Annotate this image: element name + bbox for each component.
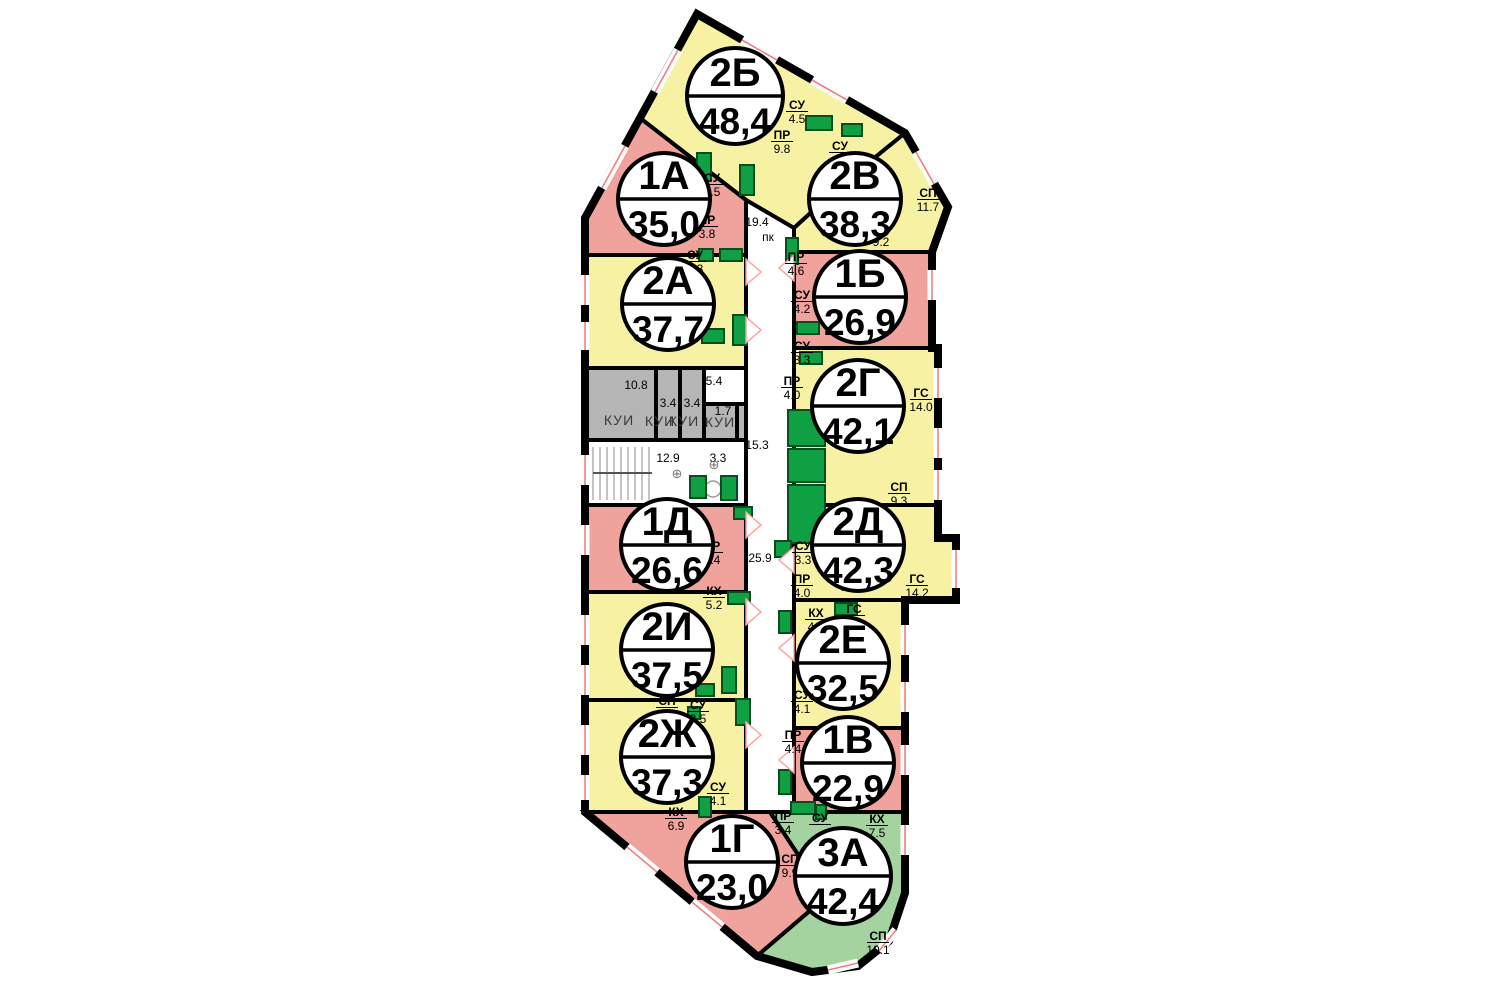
apartment-type: 2Д [833,500,884,544]
apartment-type: 2Ж [638,712,697,756]
fixture-block [690,476,706,498]
lobby-fixture [705,481,721,497]
room-label: СУ4.2 [791,288,813,316]
apartment-area: 32,5 [807,668,879,709]
apartment-badge-2В[interactable]: 2В38,3 [809,153,901,245]
svg-text:ПР: ПР [785,728,802,742]
fixture-block [733,315,747,345]
svg-text:9.8: 9.8 [774,142,791,156]
svg-text:СП: СП [869,929,886,943]
fixture-block [806,116,832,130]
apartment-badge-2Г[interactable]: 2Г42,1 [812,360,904,452]
svg-text:КХ: КХ [869,812,884,826]
apartment-area: 35,0 [628,204,700,245]
room-label: СП9.3 [888,480,910,508]
apartment-area: 37,3 [631,762,703,803]
area-value-label: 3.4 [684,396,701,410]
svg-text:14.2: 14.2 [905,586,929,600]
area-value-label: 12.9 [656,451,680,465]
svg-text:ГС: ГС [913,386,929,400]
room-label: ПР9.8 [771,128,793,156]
svg-text:4.2: 4.2 [794,302,811,316]
svg-text:СУ: СУ [794,339,811,353]
drain-symbol-icon: ⊕ [709,457,720,472]
corridor [746,200,794,812]
kui-room-label: КУИ [705,414,735,430]
room-label: СУ [829,139,851,153]
svg-text:СУ: СУ [795,539,812,553]
apartment-badge-1В[interactable]: 1В22,9 [802,717,894,809]
apartment-area: 22,9 [812,768,884,809]
area-value-label: пк [762,230,774,244]
fixture-block [779,611,791,633]
fixture-block [736,699,750,725]
apartment-badge-1Б[interactable]: 1Б26,9 [814,251,906,343]
svg-text:5.2: 5.2 [706,598,723,612]
apartment-badge-2Д[interactable]: 2Д42,3 [812,499,904,591]
apartment-type: 1В [822,718,873,762]
fixture-block [740,165,754,195]
floor-plan: СУ4.5ПР9.8СУСП11.7СУ3.5ПР3.8СУ3.3ПР4.6СУ… [0,0,1500,1000]
apartment-type: 2В [829,154,880,198]
apartment-type: 3А [817,831,868,875]
svg-text:ГС: ГС [846,602,862,616]
svg-text:11.7: 11.7 [917,200,940,214]
apartment-type: 1Б [835,252,886,296]
fixture-block [720,249,742,261]
apartment-type: 2Е [819,618,868,662]
floor-plan-svg: СУ4.5ПР9.8СУСП11.7СУ3.5ПР3.8СУ3.3ПР4.6СУ… [0,0,1500,1000]
apartment-type: 1А [638,154,689,198]
apartment-area: 42,4 [807,881,879,922]
svg-text:ПР: ПР [774,128,791,142]
svg-text:3.3: 3.3 [794,353,811,367]
apartment-badge-1Д[interactable]: 1Д26,6 [621,499,713,591]
area-value-label: 15.3 [745,438,769,452]
svg-text:14.0: 14.0 [909,400,933,414]
apartment-area: 23,0 [696,867,768,908]
area-value-label: 19.4 [745,215,769,229]
apartment-badge-2А[interactable]: 2А37,7 [622,258,714,350]
apartment-area: 48,4 [699,101,771,142]
fixture-block [779,770,791,794]
apartment-type: 2И [642,605,693,649]
room-label: СУ4.5 [786,98,808,126]
svg-text:ПР: ПР [794,572,811,586]
room-label: ПР4.6 [785,250,807,278]
room-label: ПР4.4 [782,728,804,756]
fixture-block [788,449,825,482]
svg-text:3.3: 3.3 [795,553,812,567]
area-value-label: 3.4 [660,396,677,410]
svg-text:СП: СП [890,480,907,494]
apartment-badge-1Г[interactable]: 1Г23,0 [686,816,778,908]
kui-room-label: КУИ [604,412,634,428]
svg-text:КХ: КХ [706,584,721,598]
svg-text:4.0: 4.0 [794,586,811,600]
fixture-block [721,476,737,500]
apartment-area: 37,7 [632,309,704,350]
apartment-type: 2Г [836,361,881,405]
svg-text:ПР: ПР [775,809,792,823]
apartment-area: 26,9 [824,302,896,343]
room-label: СУ4.1 [707,780,729,808]
svg-text:9.3: 9.3 [891,494,908,508]
apartment-area: 42,3 [822,550,894,591]
room-label: ПР4.0 [791,572,813,600]
room-label: ПР4.0 [781,374,803,402]
svg-text:СУ: СУ [710,780,727,794]
apartment-badge-3А[interactable]: 3А42,4 [795,828,891,924]
svg-text:4.6: 4.6 [788,264,805,278]
svg-text:3.4: 3.4 [775,823,792,837]
area-value-label: 25.9 [748,551,772,565]
apartment-badge-2Ж[interactable]: 2Ж37,3 [621,711,713,803]
apartment-type: 1Г [710,817,755,861]
svg-text:СУ: СУ [690,698,707,712]
apartment-badge-2Б[interactable]: 2Б48,4 [687,48,783,144]
svg-text:СУ: СУ [789,98,806,112]
fixture-block [722,667,736,693]
room-label: СП11.7 [917,186,940,214]
room-label: СУ [809,811,831,825]
apartment-badge-2Е[interactable]: 2Е32,5 [797,617,889,709]
apartment-area: 38,3 [819,204,891,245]
kui-room-label: КУИ [669,413,699,429]
svg-text:4.1: 4.1 [710,794,727,808]
svg-text:СП: СП [919,186,936,200]
apartment-area: 37,5 [631,655,703,696]
svg-text:КХ: КХ [668,805,683,819]
svg-text:ПР: ПР [784,374,801,388]
room-label: СУ3.3 [791,339,813,367]
apartment-badge-2И[interactable]: 2И37,5 [621,604,713,696]
svg-text:10.1: 10.1 [866,943,890,957]
svg-text:ПР: ПР [788,250,805,264]
svg-text:4.4: 4.4 [785,742,802,756]
svg-text:4.0: 4.0 [784,388,801,402]
apartment-type: 2Б [710,51,761,95]
drain-symbol-icon: ⊕ [672,466,683,481]
area-value-label: 10.8 [624,378,648,392]
fixture-block [842,124,862,136]
apartment-badge-1А[interactable]: 1А35,0 [618,153,710,245]
svg-text:СУ: СУ [812,811,829,825]
apartment-area: 42,1 [822,411,894,452]
svg-text:6.9: 6.9 [668,819,685,833]
room-label: СП10.1 [866,929,890,957]
apartment-type: 1Д [642,500,693,544]
svg-text:СУ: СУ [794,288,811,302]
svg-text:ГС: ГС [909,572,925,586]
area-value-label: 5.4 [706,374,723,388]
svg-text:4.5: 4.5 [789,112,806,126]
apartment-area: 26,6 [631,550,703,591]
apartment-type: 2А [642,259,693,303]
svg-text:СУ: СУ [832,139,849,153]
room-label: ПР3.4 [772,809,794,837]
fixture-block [797,322,819,334]
